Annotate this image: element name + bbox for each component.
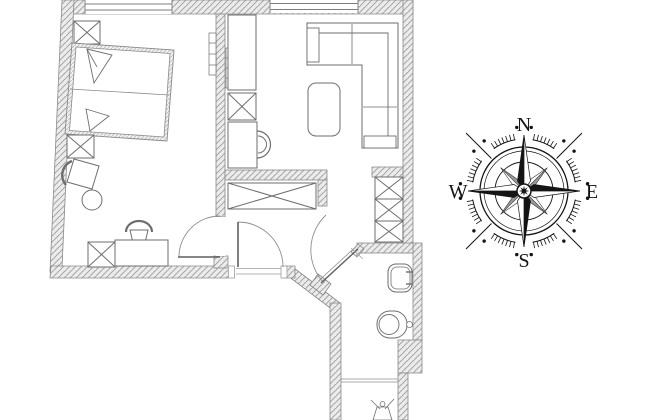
wall-niche-top xyxy=(372,167,403,177)
bathroom-door-leaf xyxy=(321,249,358,283)
entrance-frame-left xyxy=(229,266,235,278)
desk-chair-icon xyxy=(257,131,271,158)
armchair-icon xyxy=(62,159,99,189)
coffee-table-icon xyxy=(308,83,340,136)
entrance-door-swing xyxy=(238,222,283,267)
bathroom-fixtures xyxy=(377,264,413,338)
desk-icon xyxy=(228,122,257,168)
shelf-icon xyxy=(228,15,256,90)
cabinet-icon xyxy=(88,242,115,267)
east-point xyxy=(524,185,580,192)
bathroom-door-swing xyxy=(311,215,326,283)
wall-right xyxy=(403,0,413,253)
window-bedroom xyxy=(85,0,172,14)
wall-corridor-right xyxy=(398,373,408,420)
floor-plan-svg: N S W E xyxy=(0,0,650,420)
wall-hall-top xyxy=(225,170,327,180)
wall-spur xyxy=(318,180,327,206)
sideboard-icon xyxy=(228,183,316,209)
compass-label-west: W xyxy=(449,181,468,203)
compass-label-east: E xyxy=(586,181,598,203)
wall-bath-right xyxy=(413,243,422,340)
toilet-icon xyxy=(377,311,413,338)
bathroom-door-leaf-inner xyxy=(319,247,356,281)
west-point xyxy=(468,191,524,198)
south-point xyxy=(524,191,531,247)
entrance-opening xyxy=(228,266,285,280)
wall-bottom xyxy=(50,266,237,278)
compass-label-south: S xyxy=(518,250,529,272)
stool-icon xyxy=(82,190,102,210)
wardrobe-icon xyxy=(74,21,100,44)
wall-bath-top xyxy=(357,243,413,253)
tall-cabinet-icon xyxy=(375,177,403,242)
bedroom-door-opening xyxy=(216,217,226,256)
north-point xyxy=(518,135,525,191)
cabinet-icon xyxy=(228,93,256,120)
wardrobe-icon xyxy=(67,135,94,158)
compass-rose: N S W E xyxy=(449,114,599,272)
compass-hub-star xyxy=(519,186,530,197)
double-bed-icon xyxy=(65,43,174,141)
living-room-furniture xyxy=(226,15,403,242)
bedroom-furniture xyxy=(62,21,216,267)
desk-icon xyxy=(115,240,168,266)
wall-corridor-left xyxy=(330,303,341,420)
radiator-icon xyxy=(209,33,216,75)
corridor xyxy=(341,379,398,420)
compass-label-north: N xyxy=(517,114,531,136)
entrance-frame-right xyxy=(281,266,287,278)
floor-plan-image: N S W E xyxy=(0,0,650,420)
wall-bath-bottom-block xyxy=(398,340,422,373)
light-fixture-icon xyxy=(371,399,394,420)
window-livingroom xyxy=(270,0,358,13)
sink-icon xyxy=(388,264,413,292)
wall-divider xyxy=(216,14,225,217)
bedroom-door-swing xyxy=(179,216,220,257)
